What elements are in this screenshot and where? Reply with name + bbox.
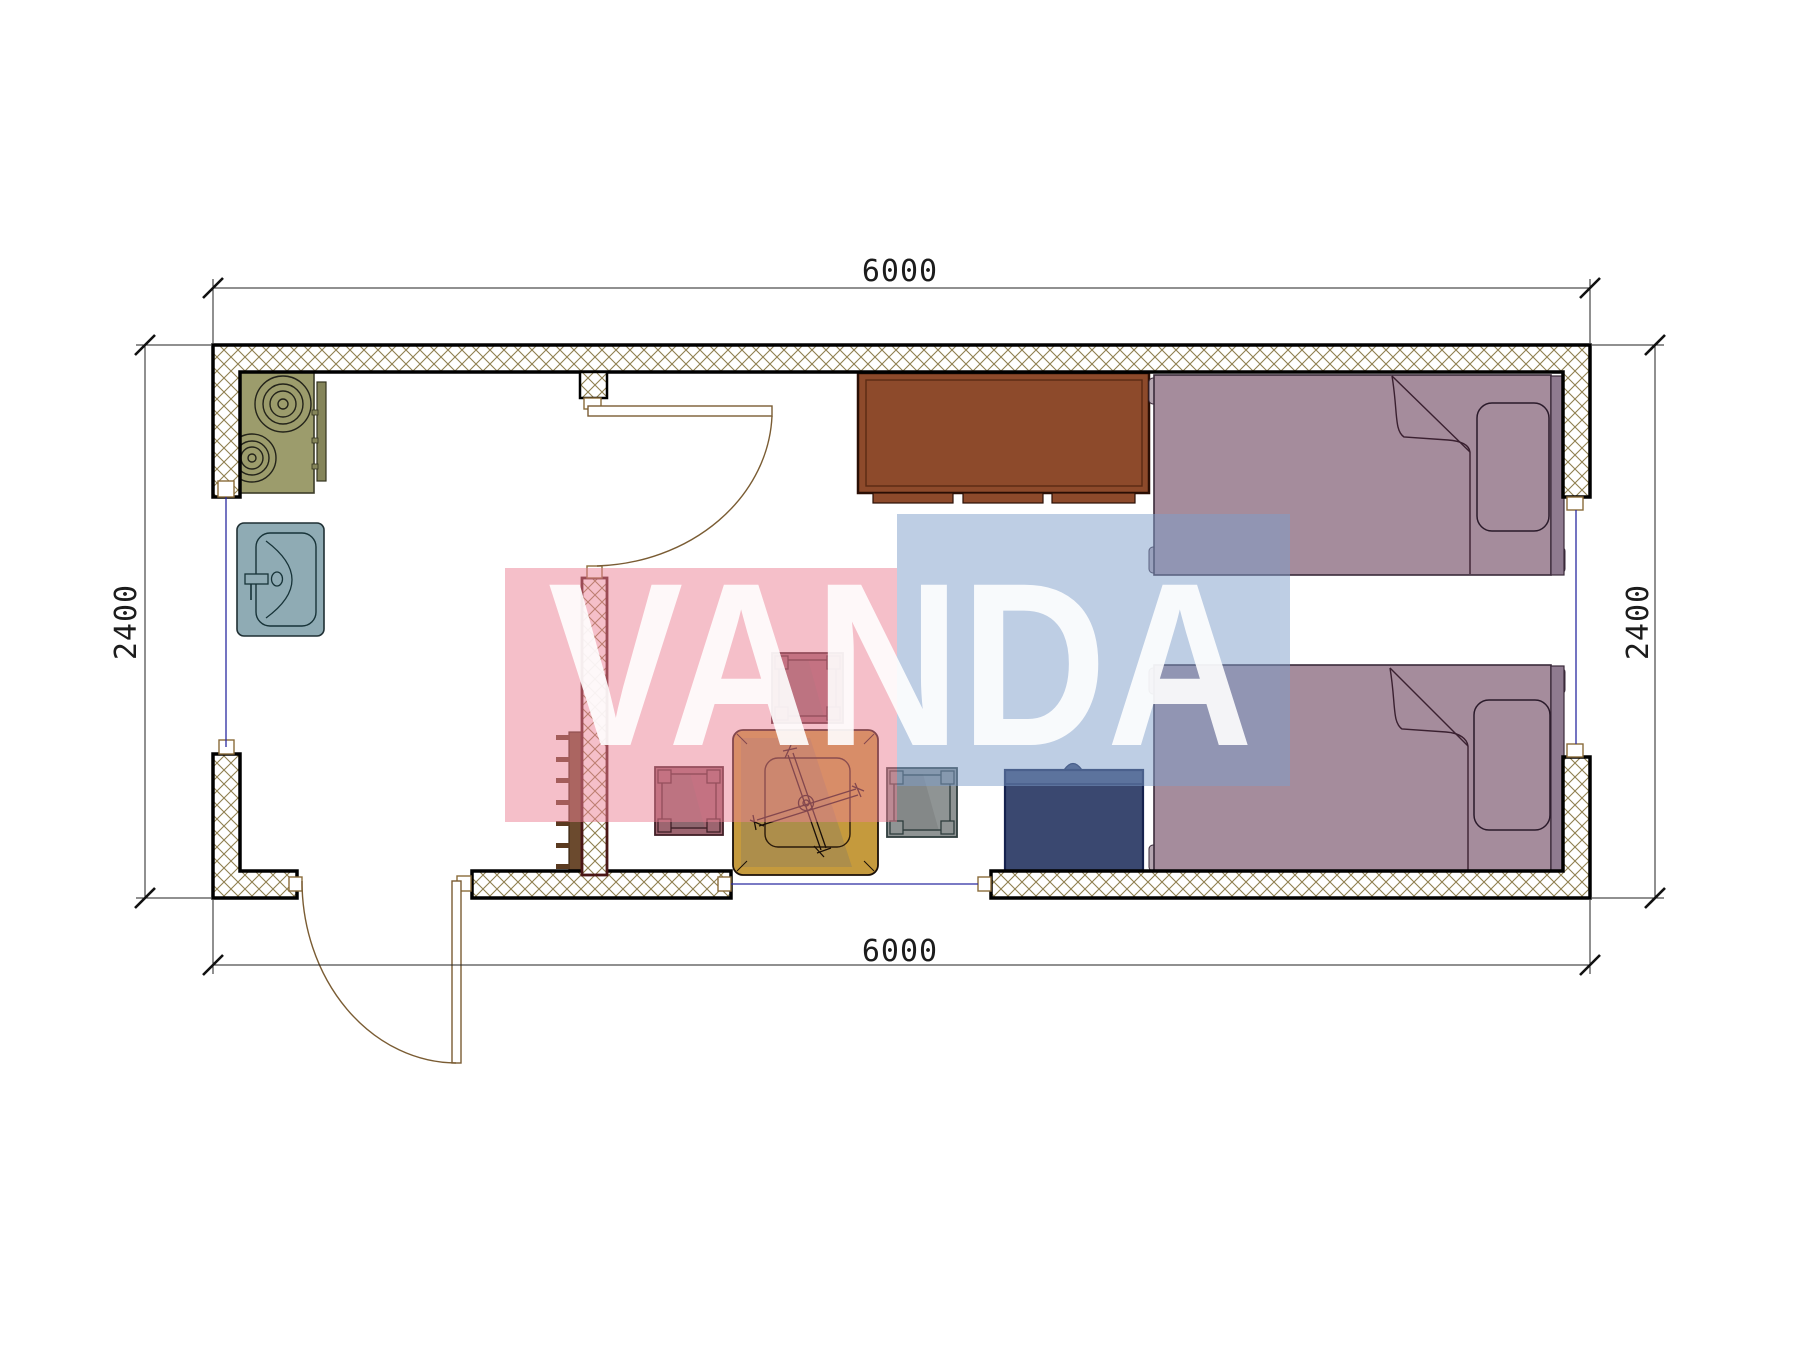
sink-icon [237,523,324,636]
pillow-icon [1477,403,1549,531]
sink-faucet [245,574,268,584]
door-jamb [580,372,607,398]
dimension-label-left: 2400 [109,584,144,660]
door-swing-icon [302,881,461,1063]
floor-plan-canvas: 6000 6000 2400 2400 VANDA [0,0,1800,1350]
watermark-text: VANDA [548,535,1253,795]
pillow-icon [1474,700,1550,830]
wall-bottom-left [213,754,297,898]
watermark: VANDA [505,514,1290,822]
floor-plan-drawing: 6000 6000 2400 2400 VANDA [0,0,1800,1350]
dimension-label-top: 6000 [862,254,938,289]
dimension-label-bottom: 6000 [862,934,938,969]
cabinet-icon [858,373,1149,503]
dimension-label-right: 2400 [1621,584,1656,660]
